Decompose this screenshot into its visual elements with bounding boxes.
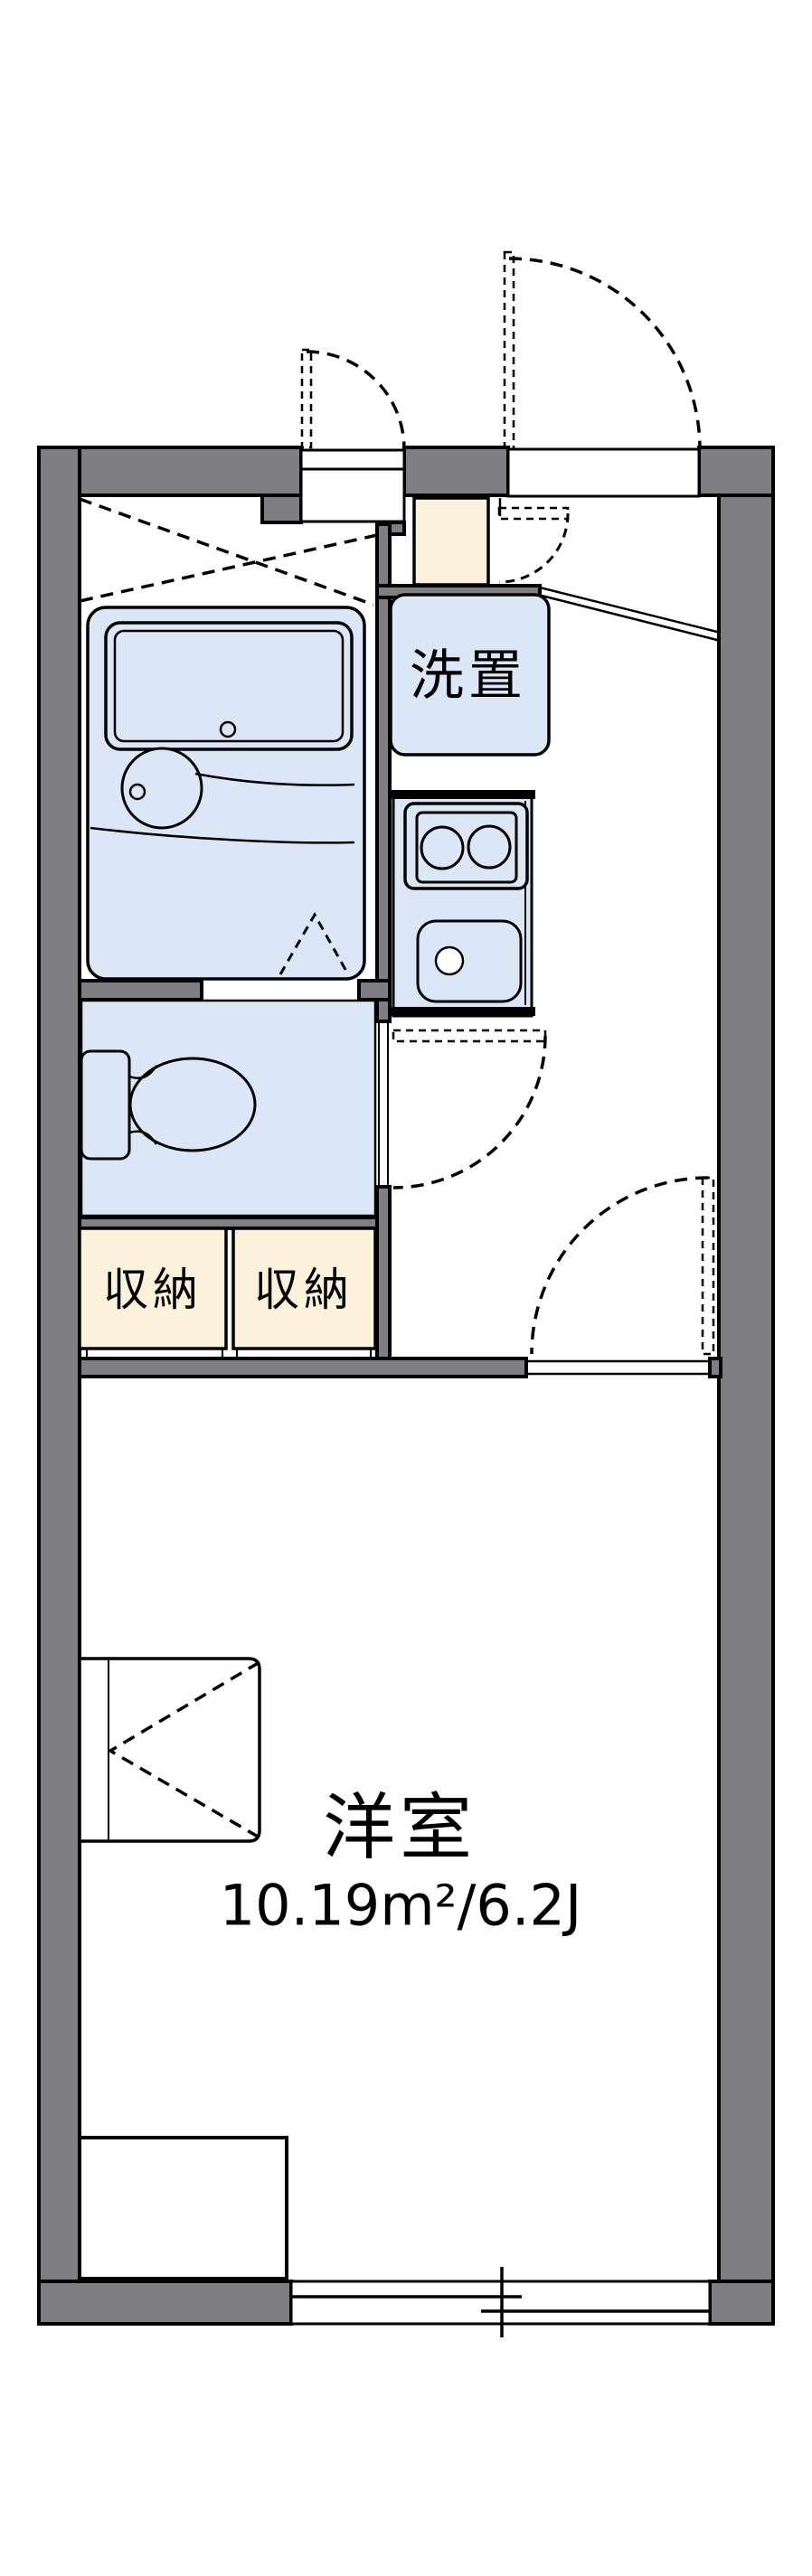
- floor-cabinet: [80, 2138, 287, 2279]
- bathtub: [106, 623, 352, 749]
- floorplan-drawing: 洗置 収納: [0, 0, 812, 2576]
- entrance-opening: [508, 449, 699, 496]
- washer-space: 洗置: [391, 595, 549, 755]
- washer-label: 洗置: [410, 644, 527, 708]
- storage-closets: 収納 収納: [80, 1228, 375, 1359]
- sink-drain-icon: [436, 947, 463, 974]
- wash-basin: [122, 748, 202, 828]
- wall-bottom-right: [710, 2281, 773, 2324]
- shoe-cabinet: [414, 498, 488, 585]
- shoe-cabinet-door-swing: [499, 513, 568, 582]
- counter-bottom-edge: [390, 1007, 535, 1016]
- sliding-window: [291, 2267, 710, 2337]
- western-room: 洋室 10.19m²/6.2J: [80, 1659, 581, 2279]
- kitchen: [390, 790, 535, 1016]
- storage-left-label: 収納: [103, 1264, 203, 1316]
- toilet-door-leaf: [393, 1030, 545, 1041]
- overhead-area-dash-2: [80, 535, 377, 601]
- kitchen-sink: [418, 921, 521, 1001]
- utility-hatch-leaf: [302, 350, 311, 447]
- genkan-step-line-2: [542, 596, 721, 641]
- toilet-door-swing: [393, 1036, 545, 1188]
- wall-top-right: [699, 447, 773, 495]
- entrance-door-swing: [509, 259, 700, 449]
- wall-toilet-storage: [80, 1217, 377, 1228]
- entrance-door-leaf: [505, 252, 514, 449]
- counter-top-edge: [390, 790, 535, 799]
- wall-hatch-jamb: [262, 495, 301, 522]
- wall-bottom-left: [39, 2281, 291, 2324]
- wall-partition-lower: [377, 1187, 390, 1359]
- genkan-step-line-1: [540, 588, 721, 633]
- room-door-leaf: [703, 1178, 713, 1354]
- utility-hatch-swing: [307, 352, 404, 449]
- room-name-label: 洋室: [323, 1786, 477, 1870]
- room-door-swing: [532, 1178, 708, 1354]
- bathroom: [80, 499, 377, 979]
- storage-right-label: 収納: [254, 1264, 354, 1316]
- wall-hall-room-stub: [710, 1359, 721, 1377]
- floorplan-page: 洗置 収納: [0, 0, 812, 2576]
- room-area-label: 10.19m²/6.2J: [220, 1873, 582, 1939]
- wall-right: [719, 495, 773, 2324]
- wall-top-mid: [404, 447, 508, 495]
- wall-bath-toilet-right: [359, 981, 390, 1000]
- toilet-room: [81, 1001, 375, 1216]
- utility-hatch-opening: [301, 450, 404, 522]
- toilet-tank: [81, 1051, 129, 1159]
- wall-bath-toilet-left: [80, 981, 202, 1000]
- bay-counter: [80, 1659, 260, 1841]
- shoe-cabinet-door-leaf: [499, 508, 568, 519]
- wall-hall-room: [80, 1359, 526, 1377]
- wall-left: [39, 447, 80, 2324]
